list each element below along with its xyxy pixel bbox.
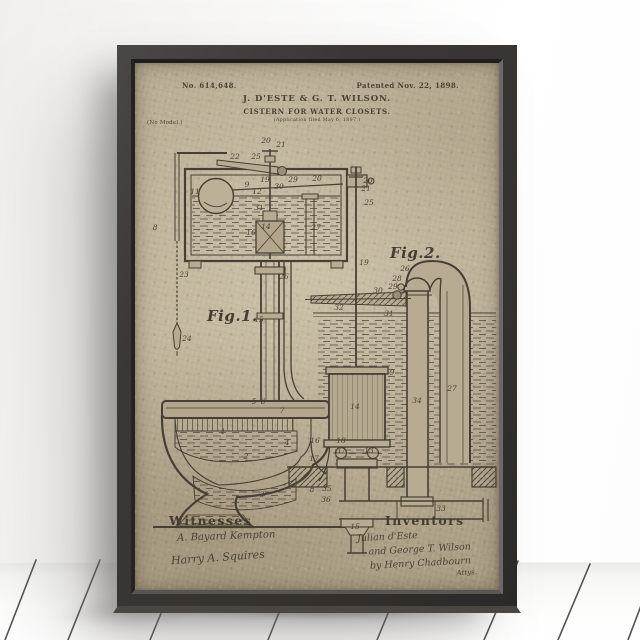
svg-text:24: 24 <box>181 334 192 343</box>
inventors-heading: Inventors <box>385 513 465 528</box>
fig2-label: Fig.2. <box>390 244 441 262</box>
patent-poster: 2021252219912302920113114162782623241556… <box>135 63 499 590</box>
no-model-note: (No Model.) <box>147 120 183 126</box>
frame-bottom-edge <box>113 606 521 613</box>
svg-text:29: 29 <box>387 282 398 291</box>
svg-text:6: 6 <box>261 397 266 406</box>
svg-text:20: 20 <box>311 174 322 183</box>
patent-authors: J. D'ESTE & G. T. WILSON. <box>135 94 499 104</box>
svg-text:17: 17 <box>309 454 319 463</box>
svg-text:14: 14 <box>261 222 271 231</box>
svg-text:29: 29 <box>287 175 298 184</box>
svg-text:14: 14 <box>350 402 360 411</box>
svg-text:12: 12 <box>252 187 262 196</box>
patent-drawing: 2021252219912302920113114162782623241556… <box>135 63 499 590</box>
svg-text:8: 8 <box>153 223 158 232</box>
svg-text:9: 9 <box>245 180 250 189</box>
svg-text:7: 7 <box>280 406 285 415</box>
svg-text:27: 27 <box>310 223 321 232</box>
patent-title: CISTERN FOR WATER CLOSETS. <box>135 107 499 116</box>
svg-text:1: 1 <box>221 427 226 436</box>
svg-text:25: 25 <box>363 198 374 207</box>
svg-text:27: 27 <box>446 384 457 393</box>
svg-text:25: 25 <box>250 152 261 161</box>
svg-text:15: 15 <box>350 522 360 531</box>
svg-text:34: 34 <box>412 396 422 405</box>
svg-text:20: 20 <box>260 136 271 145</box>
svg-text:33: 33 <box>436 504 446 513</box>
svg-text:19: 19 <box>260 175 270 184</box>
svg-text:2: 2 <box>243 452 249 461</box>
svg-text:35: 35 <box>322 484 332 493</box>
svg-text:36: 36 <box>321 495 331 504</box>
scene: 2021252219912302920113114162782623241556… <box>0 0 640 640</box>
svg-text:16: 16 <box>310 436 320 445</box>
svg-text:22: 22 <box>229 152 240 161</box>
patent-date: Patented Nov. 22, 1898. <box>357 81 459 90</box>
svg-text:13: 13 <box>364 446 374 455</box>
svg-text:3: 3 <box>260 490 265 499</box>
svg-text:21: 21 <box>275 140 286 149</box>
application-note: (Application filed May 6, 1897.) <box>135 118 499 123</box>
svg-text:32: 32 <box>334 303 344 312</box>
svg-text:37: 37 <box>336 446 346 455</box>
svg-text:11: 11 <box>190 187 200 196</box>
svg-text:5: 5 <box>252 397 257 406</box>
svg-text:31: 31 <box>254 203 264 212</box>
svg-text:23: 23 <box>178 270 189 279</box>
svg-text:21: 21 <box>360 184 371 193</box>
svg-text:19: 19 <box>359 258 369 267</box>
svg-text:26: 26 <box>278 272 289 281</box>
svg-text:31: 31 <box>384 309 394 318</box>
picture-frame: 2021252219912302920113114162782623241556… <box>117 45 517 608</box>
fig1-label: Fig.1. <box>207 307 258 325</box>
svg-text:26: 26 <box>399 264 410 273</box>
svg-text:9: 9 <box>390 368 395 377</box>
svg-text:8: 8 <box>310 485 315 494</box>
svg-text:16: 16 <box>246 228 256 237</box>
svg-text:30: 30 <box>373 286 383 295</box>
witnesses-heading: Witnesses <box>169 513 252 528</box>
patent-number: No. 614,648. <box>182 81 237 90</box>
svg-text:18: 18 <box>336 436 346 445</box>
svg-text:30: 30 <box>274 182 284 191</box>
inventor-signatures: Julian d'Este and George T. Wilson by He… <box>349 525 492 584</box>
svg-text:4: 4 <box>284 438 290 447</box>
